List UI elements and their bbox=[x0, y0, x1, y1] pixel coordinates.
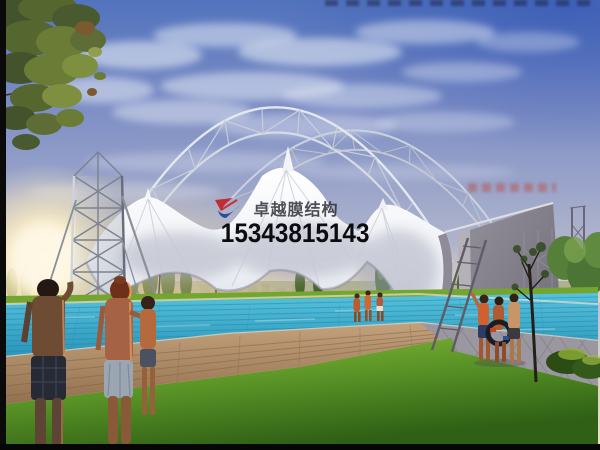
poolside-people-right bbox=[472, 293, 526, 367]
scene-art bbox=[0, 0, 600, 450]
cropped-watermark-remnant bbox=[325, 0, 595, 6]
faint-red-watermark bbox=[468, 183, 556, 192]
rendering-photo: 卓越膜结构 15343815143 bbox=[0, 0, 600, 450]
